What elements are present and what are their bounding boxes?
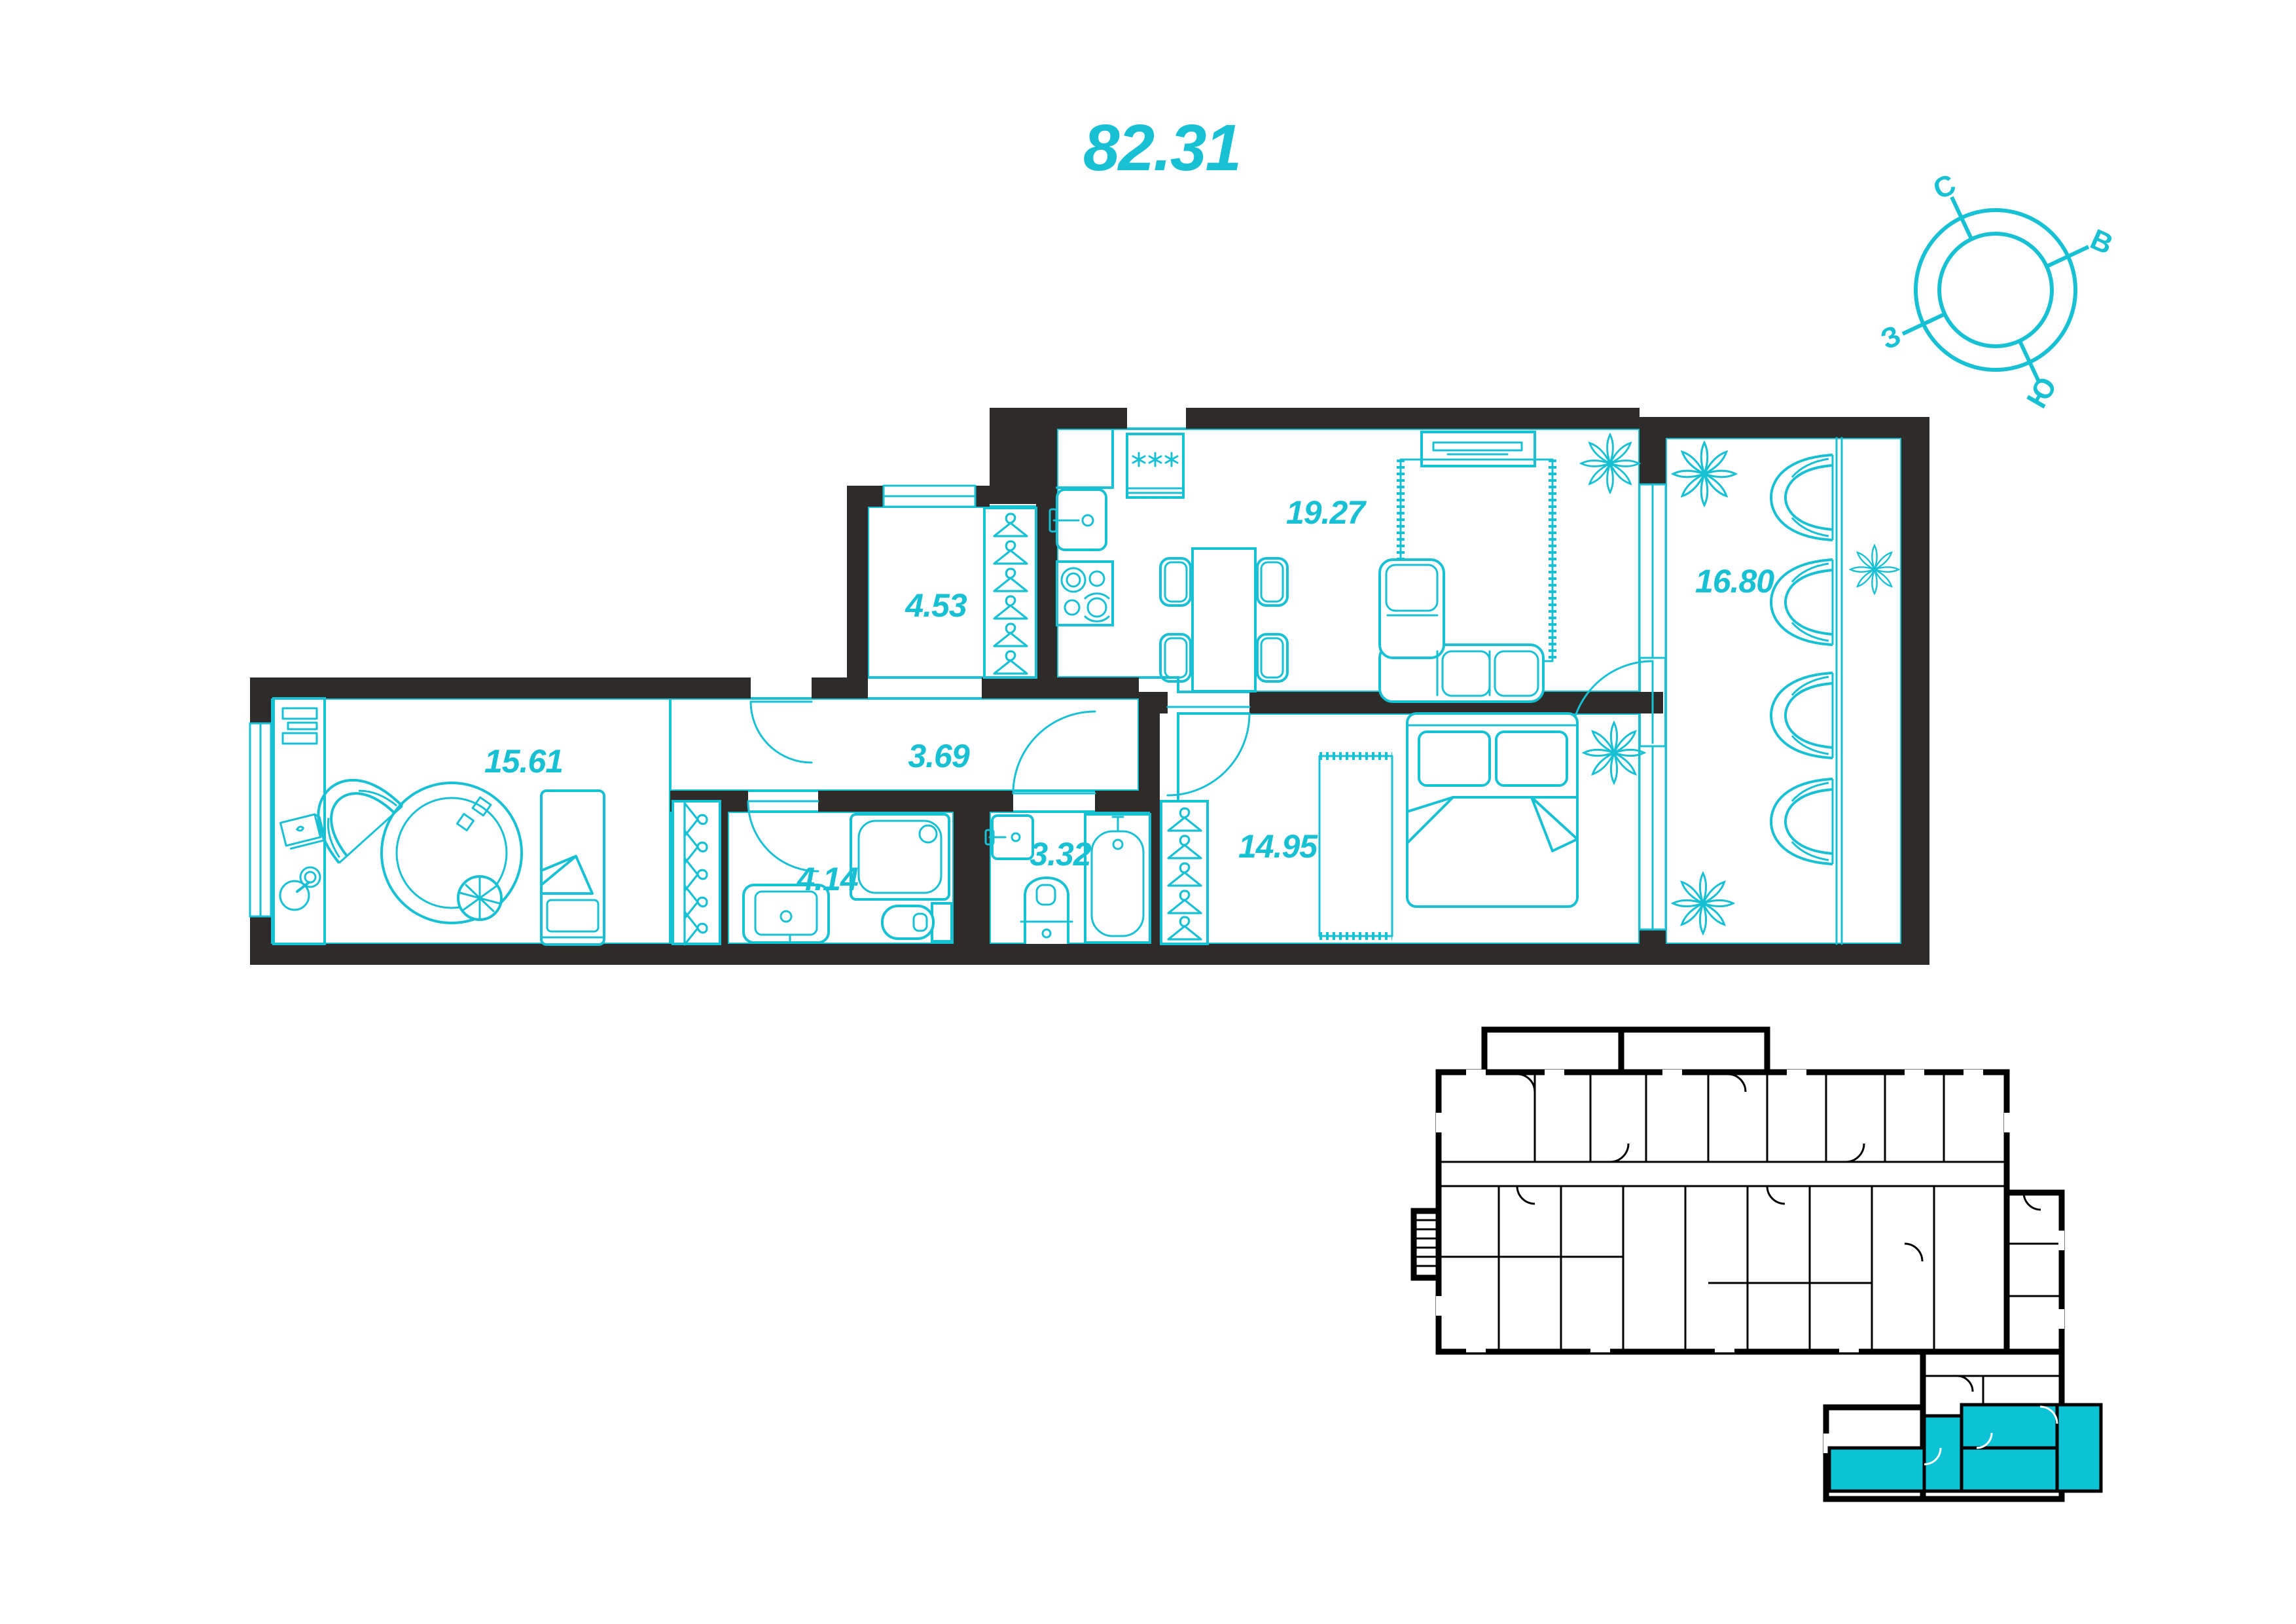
tv-stand [1422,432,1535,466]
closet-window [884,486,975,507]
wc-area-label: 3.32 [1030,836,1092,873]
bathroom-area-label: 4.14 [796,861,858,897]
closet-hanger-rack [984,508,1036,677]
hallway-floor [670,698,1139,791]
bathtub [1085,814,1150,943]
stove [1057,562,1113,625]
shower [851,814,949,899]
kitchen-living-area-label: 19.27 [1286,494,1367,531]
compass-south-label: Ю [2020,372,2063,414]
rug-pinwheel [458,876,501,920]
bedroom-area-label: 14.95 [1238,828,1318,865]
kitchen-sink [1050,490,1106,550]
living-balcony-window [1640,484,1666,658]
compass-north-label: С [1929,168,1961,206]
total-area-label: 82.31 [1083,111,1240,185]
bedroom-balcony-window [1640,746,1666,929]
hallway-area-label: 3.69 [908,738,970,774]
floor-plan-canvas: 82.31 С В З Ю [0,0,2296,1624]
fridge [1127,434,1183,497]
wc-basin [986,816,1033,859]
room-secondary-area-label: 15.61 [484,743,563,780]
balcony-floor [1666,438,1901,944]
closet-area-label: 4.53 [905,587,967,624]
compass-rose: С В З Ю [1876,168,2117,414]
compass-east-label: В [2086,223,2118,261]
compass-west-label: З [1876,319,1905,356]
compass-ticks [1903,197,2089,383]
balcony-area-label: 16.80 [1695,563,1774,600]
single-bed [541,791,604,945]
page: 82.31 С В З Ю [0,0,2296,1624]
apartment-plan: 19.27 4.53 3.69 15.61 4.14 3.32 14.95 16… [250,408,1929,965]
bathroom-toilet [882,903,952,941]
double-bed [1407,713,1577,907]
room-secondary-window [250,723,271,916]
corridor-wardrobe [673,801,720,945]
wc-toilet [1021,878,1072,944]
compass-inner-circle [1939,234,2052,346]
key-plan [1414,1030,2101,1499]
bedroom-wardrobe [1161,801,1208,944]
